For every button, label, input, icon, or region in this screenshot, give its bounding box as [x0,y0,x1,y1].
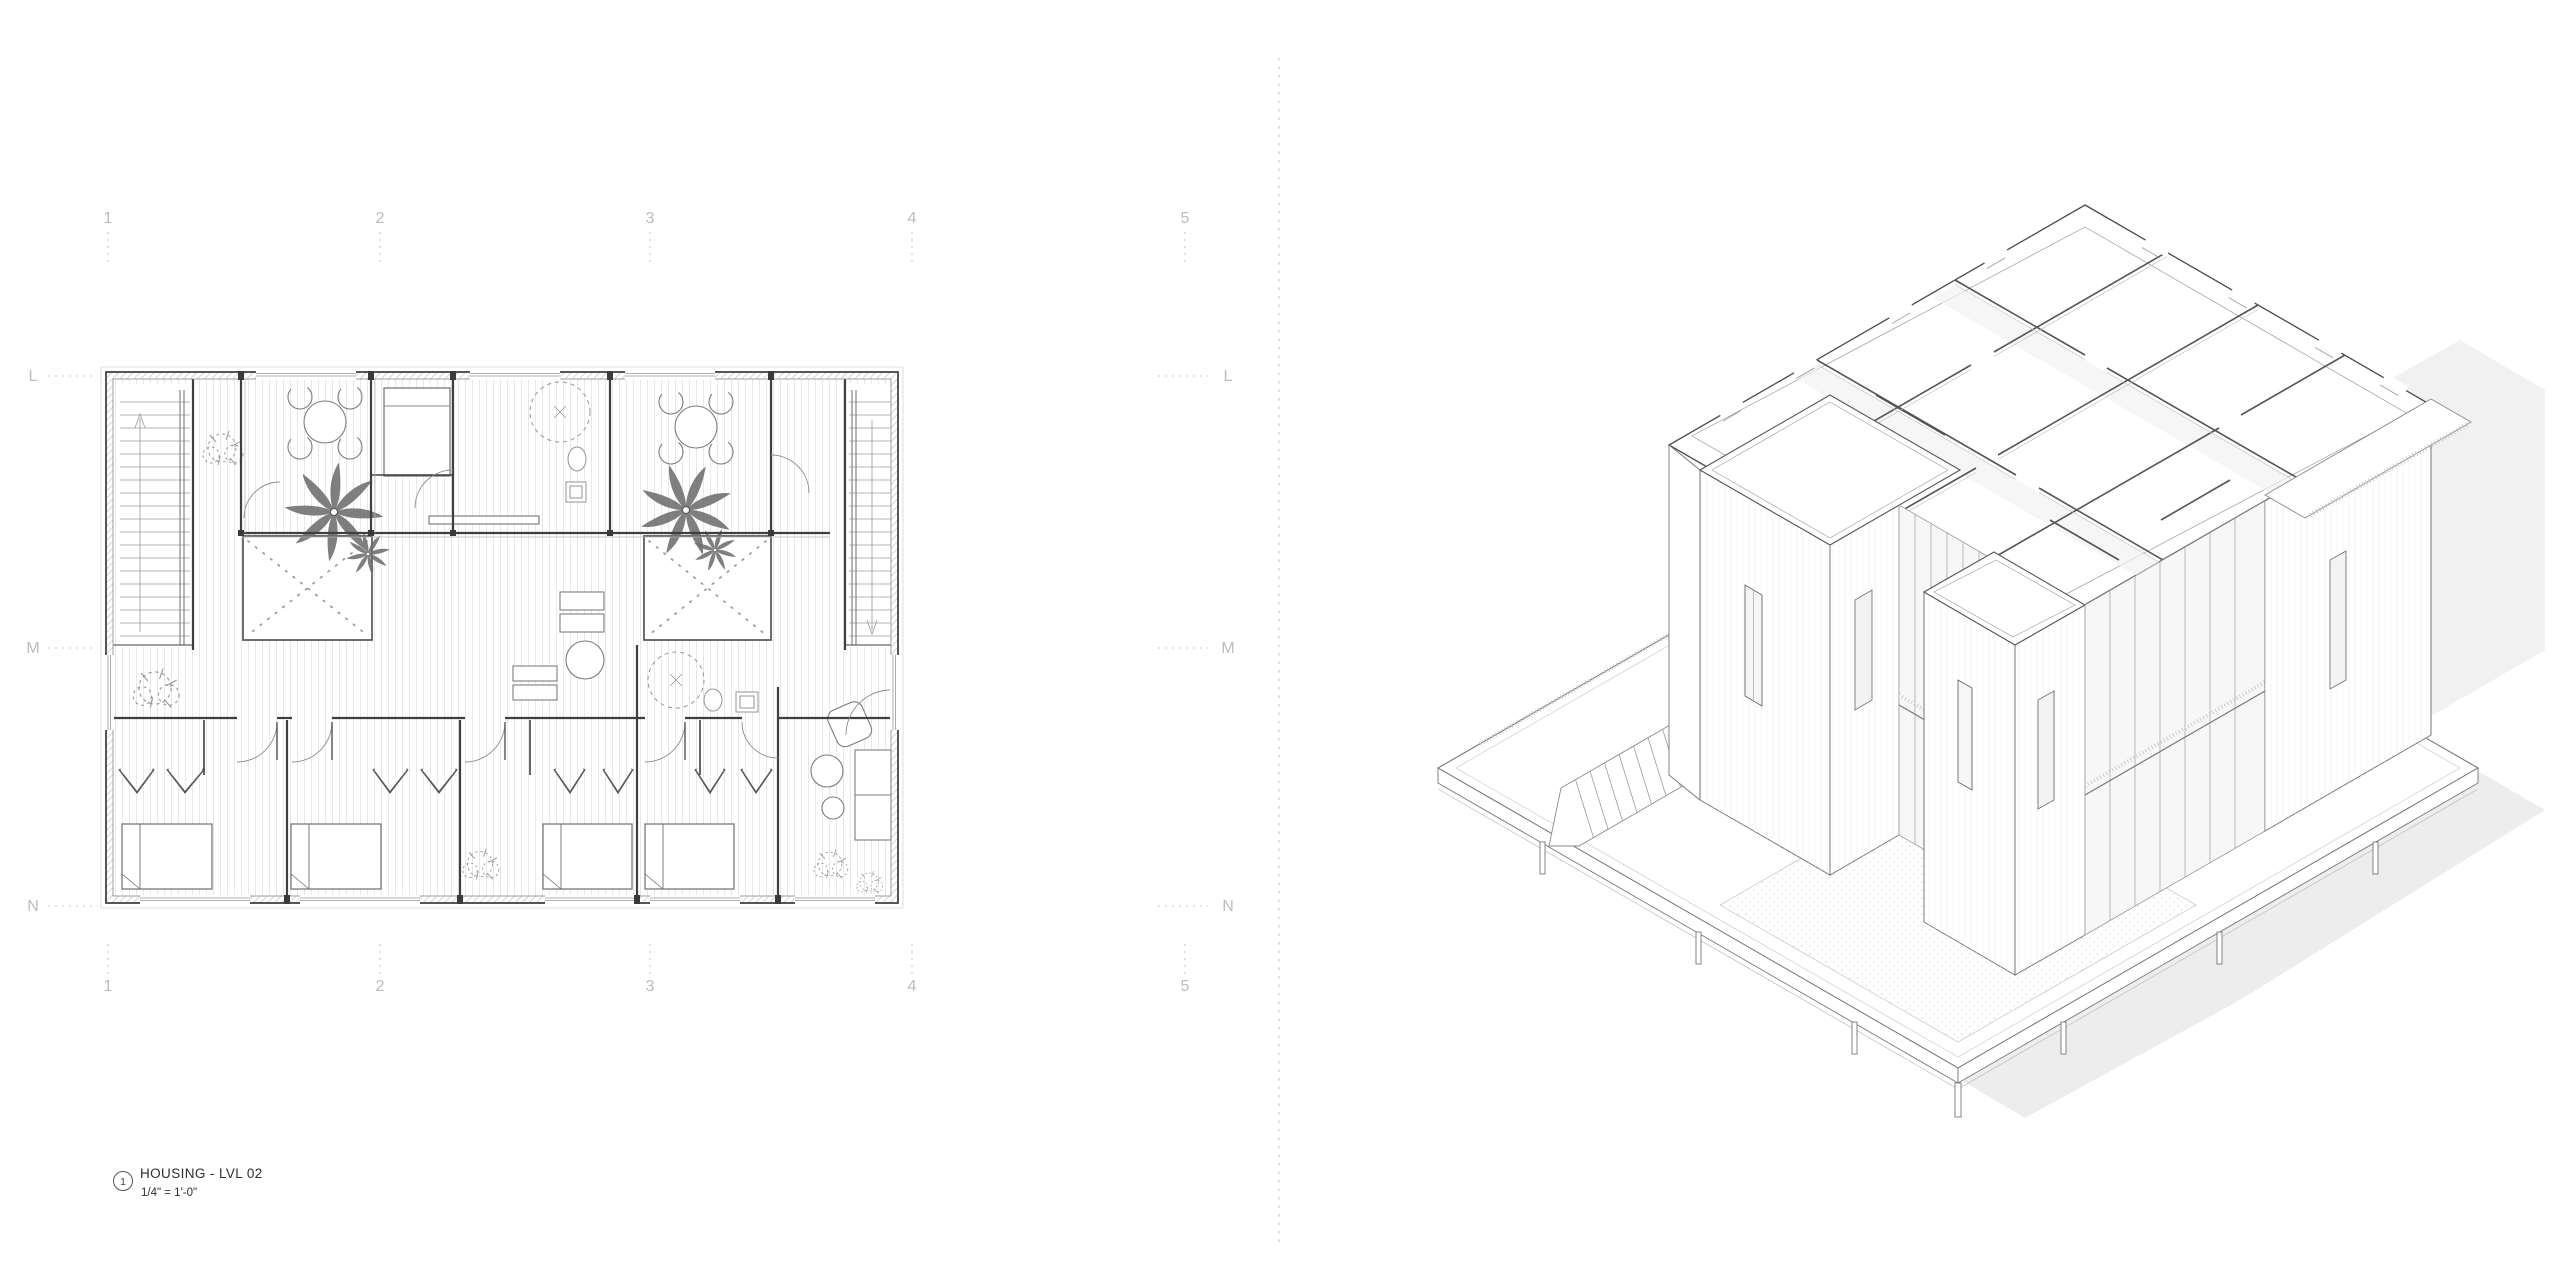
grid-label-top-3: 3 [646,210,655,227]
courtyard-2 [644,536,771,640]
drawing-scale: 1/4" = 1'-0" [141,1187,197,1199]
kitchen-counter [429,516,539,524]
grid-label-top-5: 5 [1181,210,1190,227]
courtyard-1 [243,536,372,640]
grid-label-bottom-1: 1 [104,978,113,995]
grid-label-left-L: L [29,368,38,385]
title-block: 1 HOUSING - LVL 02 1/4" = 1'-0" [114,1166,263,1199]
axon-view [1438,205,2545,1118]
grid-label-left-M: M [26,640,39,657]
grid-label-bottom-2: 2 [376,978,385,995]
grid-label-right-L: L [1224,368,1233,385]
drawing-title: HOUSING - LVL 02 [140,1166,263,1181]
grid-label-bottom-4: 4 [908,978,917,995]
floor-plan [101,367,903,908]
sheet-canvas: 1 2 3 4 5 1 2 3 4 5 L M N L M N [0,0,2560,1280]
detail-number: 1 [120,1176,126,1188]
grid-label-top-2: 2 [376,210,385,227]
grid-label-left-N: N [27,898,39,915]
bed-top [384,388,450,476]
grid-label-bottom-5: 5 [1181,978,1190,995]
grid-label-top-4: 4 [908,210,917,227]
grid-label-right-N: N [1222,898,1234,915]
grid-label-bottom-3: 3 [646,978,655,995]
grid-label-top-1: 1 [104,210,113,227]
drawing-sheet: 1 2 3 4 5 1 2 3 4 5 L M N L M N [0,0,2560,1280]
floor-plank-field [113,379,891,896]
grid-label-right-M: M [1221,640,1234,657]
axon-tower-front [1924,552,2085,975]
axon-left-sliver-wall [1669,445,1700,800]
